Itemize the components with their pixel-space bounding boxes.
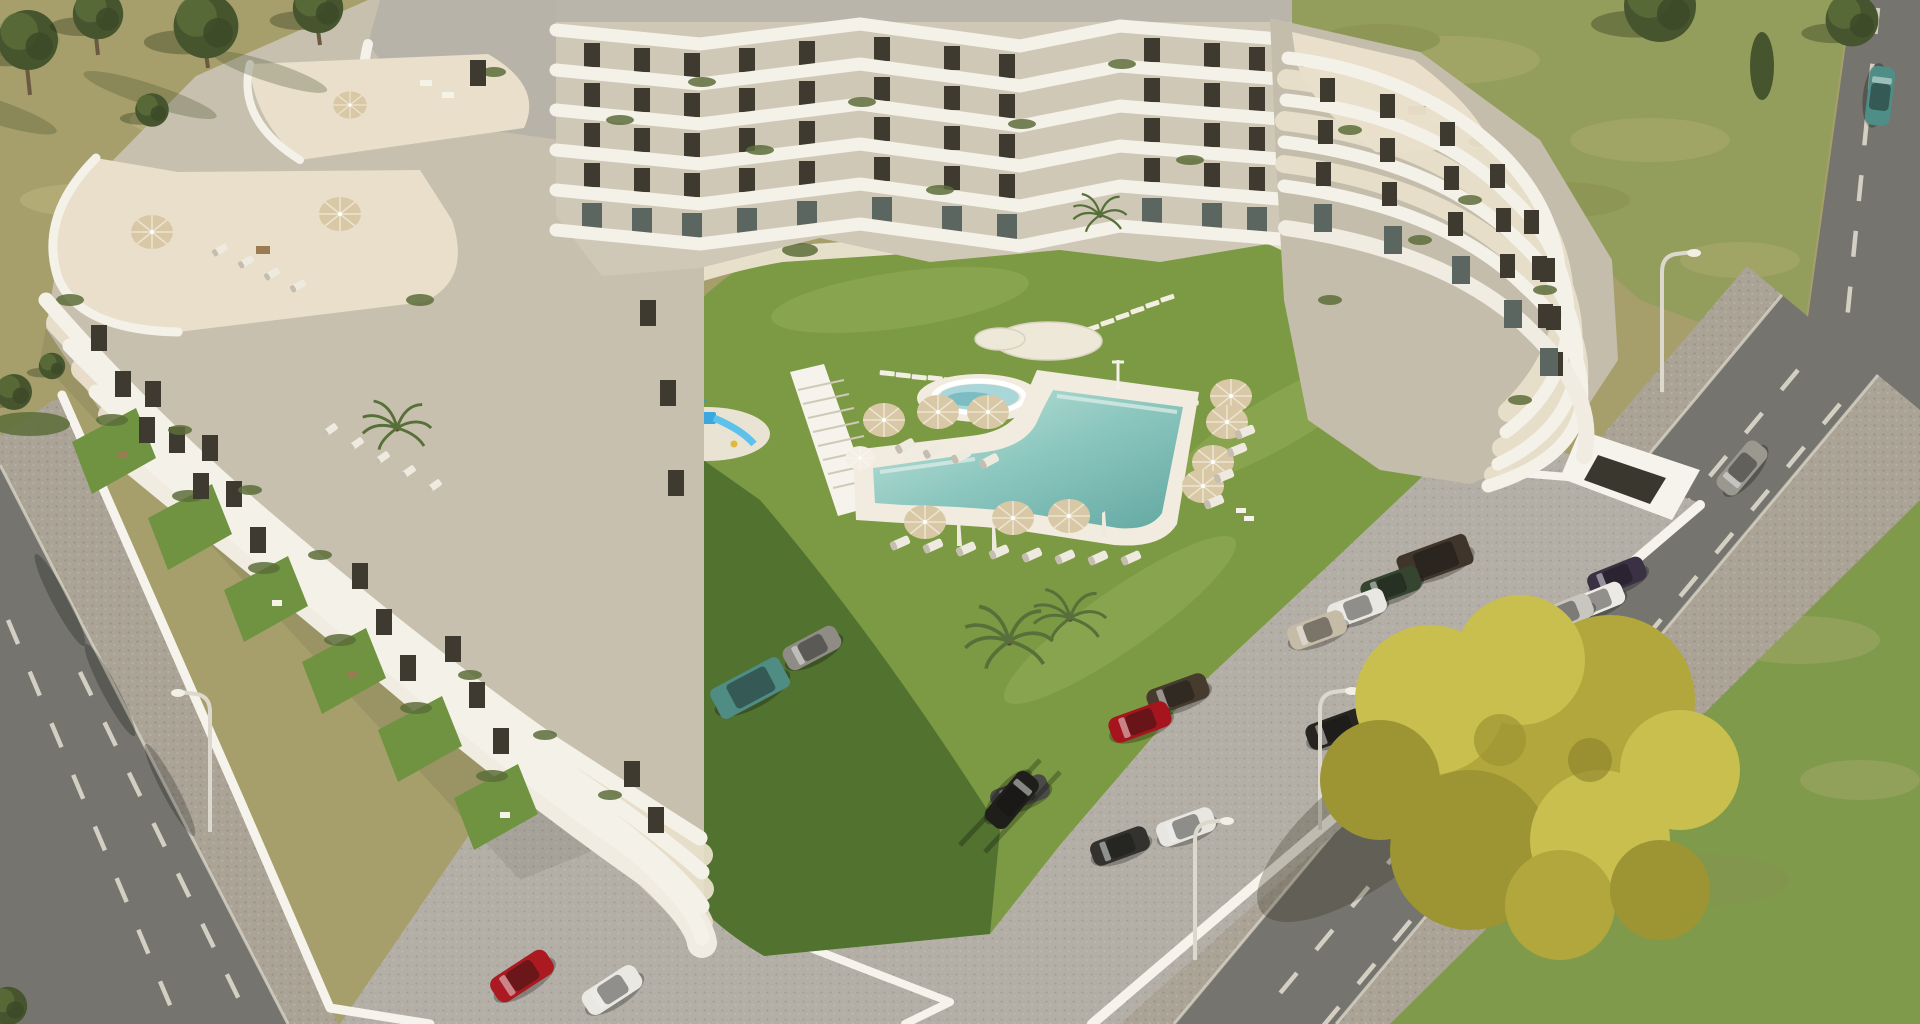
paved-circle-small	[975, 328, 1025, 350]
scene-canvas: Aerial 3D architectural render of a whit…	[0, 0, 1920, 1024]
aerial-render: Aerial 3D architectural render of a whit…	[0, 0, 1920, 1024]
top-wing-roof	[556, 0, 1292, 22]
building-top-wing	[556, 0, 1292, 276]
umbrella	[131, 215, 173, 249]
umbrella	[333, 91, 367, 118]
umbrella	[319, 197, 361, 231]
cypress-tree	[1750, 32, 1774, 100]
